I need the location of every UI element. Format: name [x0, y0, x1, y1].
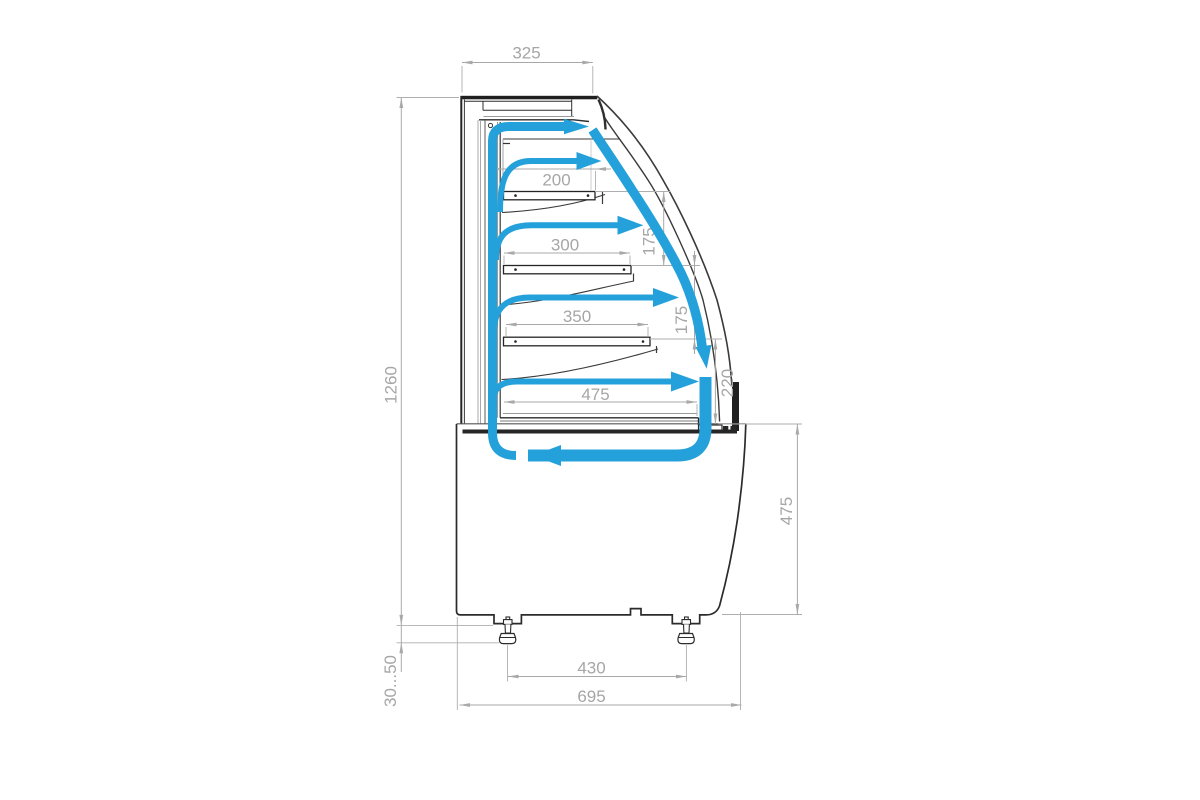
svg-text:200: 200	[542, 171, 570, 190]
svg-text:300: 300	[551, 236, 579, 255]
svg-text:475: 475	[581, 385, 609, 404]
svg-text:220: 220	[718, 369, 737, 397]
svg-text:30...50: 30...50	[381, 655, 400, 707]
svg-text:325: 325	[512, 44, 540, 63]
svg-text:475: 475	[777, 497, 796, 525]
svg-text:1260: 1260	[381, 366, 400, 404]
svg-text:430: 430	[577, 659, 605, 678]
svg-text:175: 175	[672, 306, 691, 334]
svg-text:695: 695	[577, 687, 605, 706]
svg-text:350: 350	[563, 307, 591, 326]
